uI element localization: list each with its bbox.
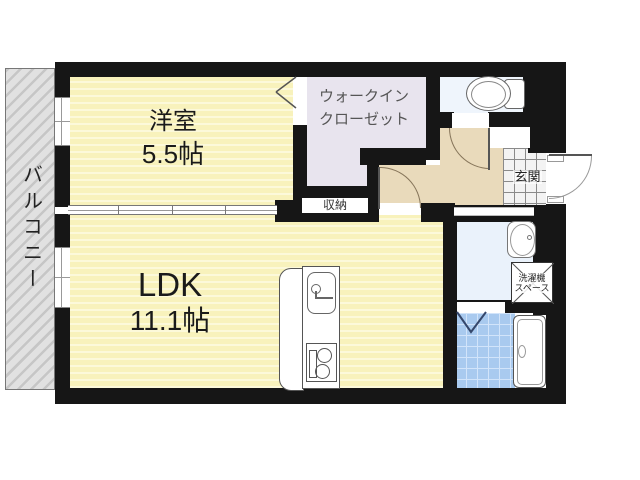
washer-space-line2: スペース [515, 283, 550, 293]
stove-burner [315, 364, 330, 379]
washing-machine-space-box: 洗濯機 スペース [511, 262, 553, 303]
ldk-size: 11.1帖 [90, 305, 250, 337]
storage-closet: 収納 [302, 198, 368, 213]
window-tick [55, 277, 70, 278]
wic-line2: クローゼット [302, 111, 426, 128]
entrance-label-box: 玄関 [503, 148, 552, 206]
floor-plan: バルコニー [0, 0, 640, 480]
entry-door-arc [549, 156, 592, 199]
wall-top [55, 62, 566, 77]
window-western [55, 97, 70, 146]
kitchen-faucet-lever-arm [315, 297, 333, 299]
folding-door-icon [454, 310, 490, 336]
toilet-doorway [452, 113, 489, 128]
stove-burner [317, 348, 332, 363]
storage-label: 収納 [323, 199, 347, 213]
wall-closet-ext-bottom [294, 186, 372, 198]
window-ldk [55, 247, 70, 308]
bathtub-icon [513, 315, 546, 388]
washroom-opening [454, 207, 534, 216]
stove-grill [309, 350, 317, 378]
kitchen-counter [279, 268, 304, 391]
washer-space-label: 洗濯機 スペース [514, 273, 551, 293]
wall-closet-bottom-east [360, 148, 426, 165]
western-room-label: 洋室 5.5帖 [103, 108, 243, 169]
balcony-label: バルコニー [19, 164, 42, 294]
sliding-partition [68, 205, 277, 215]
kitchen-unit [302, 266, 340, 389]
closet-door-icon [274, 74, 298, 112]
wall-bottom [55, 388, 566, 404]
washbasin-faucet [527, 235, 532, 240]
walk-in-closet-floor-lower [302, 150, 367, 188]
window-tick [55, 121, 70, 122]
entry-door-leaf [549, 154, 592, 156]
ldk-label: LDK 11.1帖 [90, 266, 250, 337]
washbasin-bowl [510, 224, 535, 256]
partition-tick [225, 206, 226, 214]
wic-line1: ウォークイン [302, 88, 426, 105]
toilet-door-leaf [488, 128, 490, 170]
western-room-size: 5.5帖 [103, 140, 243, 170]
walk-in-closet-label: ウォークイン クローゼット [302, 88, 426, 129]
wall-toilet-bottom-right [488, 112, 532, 127]
bathtub-drain [518, 345, 526, 358]
ldk-name: LDK [90, 266, 250, 304]
wall-right [546, 62, 566, 404]
entrance-label: 玄関 [513, 170, 541, 185]
partition-tick [172, 206, 173, 214]
washer-space-line1: 洗濯機 [515, 273, 550, 283]
toilet-seat [471, 81, 506, 108]
entrance-step [490, 127, 530, 148]
partition-tick [118, 206, 119, 214]
western-room-name: 洋室 [103, 108, 243, 136]
balcony-area: バルコニー [5, 68, 55, 390]
ldk-door-leaf [378, 167, 380, 209]
wall-closet-right [426, 62, 440, 160]
kitchen-sink-icon [307, 272, 336, 314]
